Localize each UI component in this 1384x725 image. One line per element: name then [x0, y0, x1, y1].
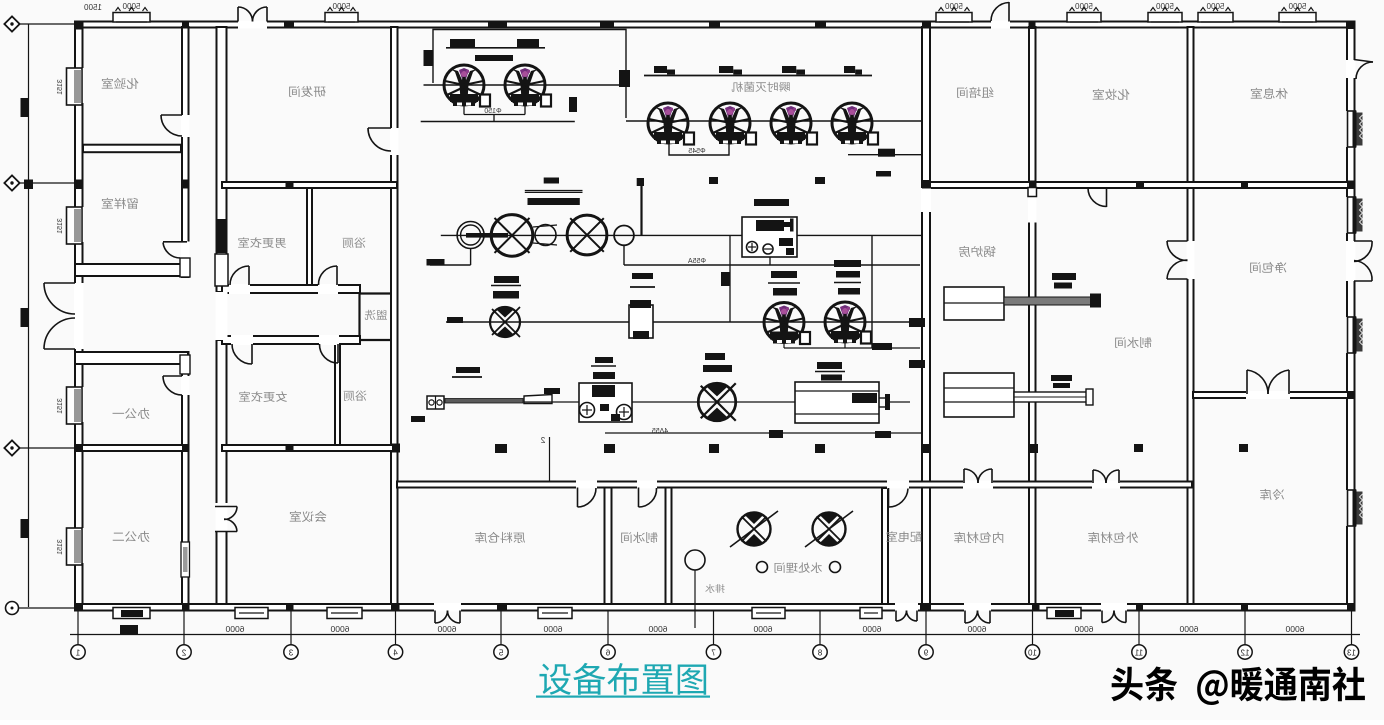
svg-text:Φ55A: Φ55A — [688, 258, 706, 265]
svg-text:13: 13 — [1347, 649, 1356, 658]
svg-text:2: 2 — [181, 649, 186, 658]
svg-text:10: 10 — [1028, 649, 1037, 658]
svg-text:5000: 5000 — [1288, 2, 1306, 11]
svg-text:3151: 3151 — [57, 79, 64, 95]
svg-text:5: 5 — [498, 649, 503, 658]
svg-text:1500: 1500 — [84, 3, 102, 12]
svg-text:6000: 6000 — [1074, 624, 1093, 634]
svg-text:6000: 6000 — [967, 624, 986, 634]
svg-text:5000: 5000 — [1206, 2, 1224, 11]
svg-text:4: 4 — [393, 649, 398, 658]
svg-text:5000: 5000 — [1156, 2, 1174, 11]
svg-text:Φ545: Φ545 — [688, 148, 705, 155]
svg-text:7: 7 — [711, 649, 716, 658]
svg-text:2: 2 — [540, 436, 545, 445]
svg-text:1: 1 — [75, 649, 80, 658]
svg-text:5000: 5000 — [122, 2, 140, 11]
svg-text:11: 11 — [1134, 649, 1143, 658]
svg-text:3151: 3151 — [57, 539, 64, 555]
svg-text:6000: 6000 — [543, 624, 562, 634]
svg-text:6: 6 — [605, 649, 610, 658]
svg-text:9: 9 — [923, 649, 928, 658]
svg-text:6000: 6000 — [862, 624, 881, 634]
svg-text:4Λ55: 4Λ55 — [652, 428, 668, 435]
svg-text:8: 8 — [817, 649, 822, 658]
svg-text:6000: 6000 — [437, 624, 456, 634]
svg-text:6000: 6000 — [1179, 624, 1198, 634]
svg-text:3151: 3151 — [57, 218, 64, 234]
svg-text:6000: 6000 — [648, 624, 667, 634]
svg-text:12: 12 — [1240, 649, 1249, 658]
svg-text:3151: 3151 — [57, 398, 64, 414]
svg-text:6000: 6000 — [330, 624, 349, 634]
svg-text:Φ150: Φ150 — [484, 108, 501, 115]
svg-text:5000: 5000 — [945, 2, 963, 11]
svg-text:5000: 5000 — [332, 2, 350, 11]
svg-text:6000: 6000 — [753, 624, 772, 634]
svg-text:3: 3 — [288, 649, 293, 658]
svg-text:6000: 6000 — [1285, 624, 1304, 634]
svg-text:5000: 5000 — [1075, 2, 1093, 11]
svg-text:6000: 6000 — [225, 624, 244, 634]
